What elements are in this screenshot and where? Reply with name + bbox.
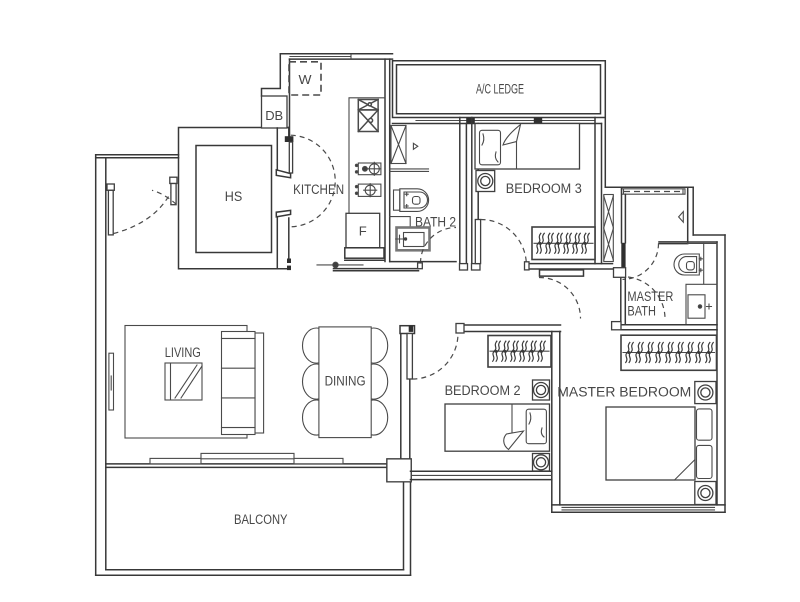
svg-text:MASTER BEDROOM: MASTER BEDROOM xyxy=(557,385,691,401)
svg-text:HS: HS xyxy=(225,189,243,204)
svg-text:BALCONY: BALCONY xyxy=(234,512,288,528)
svg-text:BATH: BATH xyxy=(627,304,656,320)
svg-text:BEDROOM 2: BEDROOM 2 xyxy=(445,383,521,399)
svg-text:LIVING: LIVING xyxy=(165,345,201,361)
svg-text:F: F xyxy=(359,224,367,239)
svg-text:A/C LEDGE: A/C LEDGE xyxy=(476,82,524,98)
svg-text:W: W xyxy=(299,72,313,87)
svg-text:KITCHEN: KITCHEN xyxy=(293,182,344,198)
svg-text:BEDROOM 3: BEDROOM 3 xyxy=(506,181,582,197)
svg-text:DINING: DINING xyxy=(325,373,366,389)
svg-text:DB: DB xyxy=(265,108,283,123)
